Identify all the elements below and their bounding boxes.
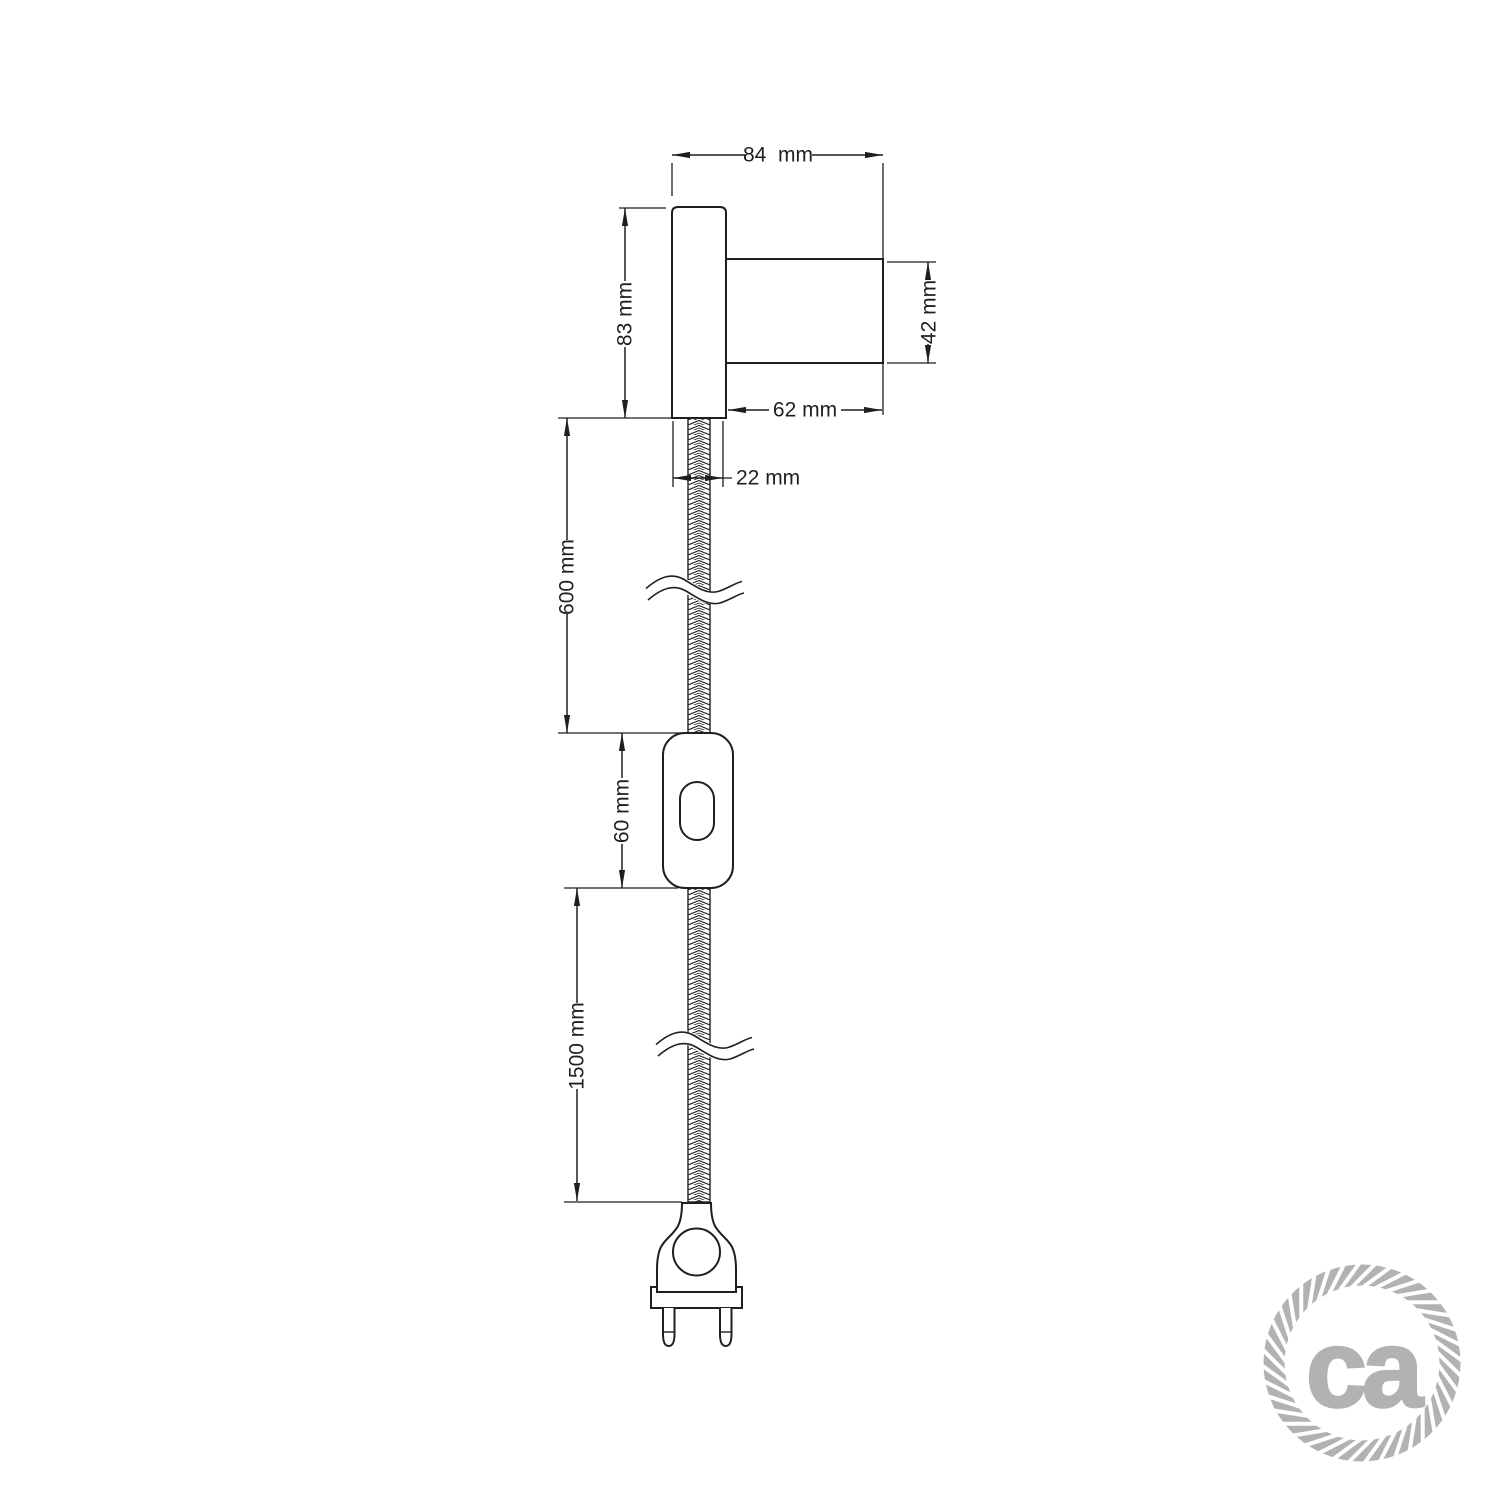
wall-plate [672,207,726,418]
dimension-plate-height: 83 mm [614,208,637,418]
dimension-total-width: 84 mm [672,144,883,167]
dimension-socket-length: 62 mm [728,399,882,422]
dim-label-plate-height: 83 mm [614,282,637,346]
plug-prong-left [663,1308,675,1346]
dim-label-lower-cable-length: 1500 mm [566,1002,589,1090]
dim-label-socket-length: 62 mm [773,399,837,422]
switch-button [680,782,714,840]
dim-label-socket-diameter: 42 mm [918,280,941,344]
dimension-switch-length: 60 mm [611,733,634,888]
dim-label-upper-cable-length: 600 mm [556,539,579,615]
dim-label-switch-length: 60 mm [611,779,634,843]
dimension-socket-diameter: 42 mm [918,262,941,363]
socket-cylinder [726,259,883,363]
dim-label-total-width: 84 mm [743,144,813,167]
plug-cable-hole [673,1229,720,1276]
brand-logo: ca [1261,1262,1463,1464]
dimension-upper-cable-length: 600 mm [556,418,579,733]
inline-switch [663,733,733,888]
dim-label-plate-thickness: 22 mm [736,467,800,490]
technical-drawing-page: 84 mm 83 mm 42 mm 62 mm 22 mm 600 mm 60 … [0,0,1500,1500]
dimension-lower-cable-length: 1500 mm [566,888,589,1201]
fabric-cable-upper [688,418,710,733]
spotlight-dimension-diagram: 84 mm 83 mm 42 mm 62 mm 22 mm 600 mm 60 … [0,0,1500,1500]
logo-text: ca [1306,1308,1424,1431]
power-plug [651,1203,742,1346]
plug-prong-right [720,1308,732,1346]
